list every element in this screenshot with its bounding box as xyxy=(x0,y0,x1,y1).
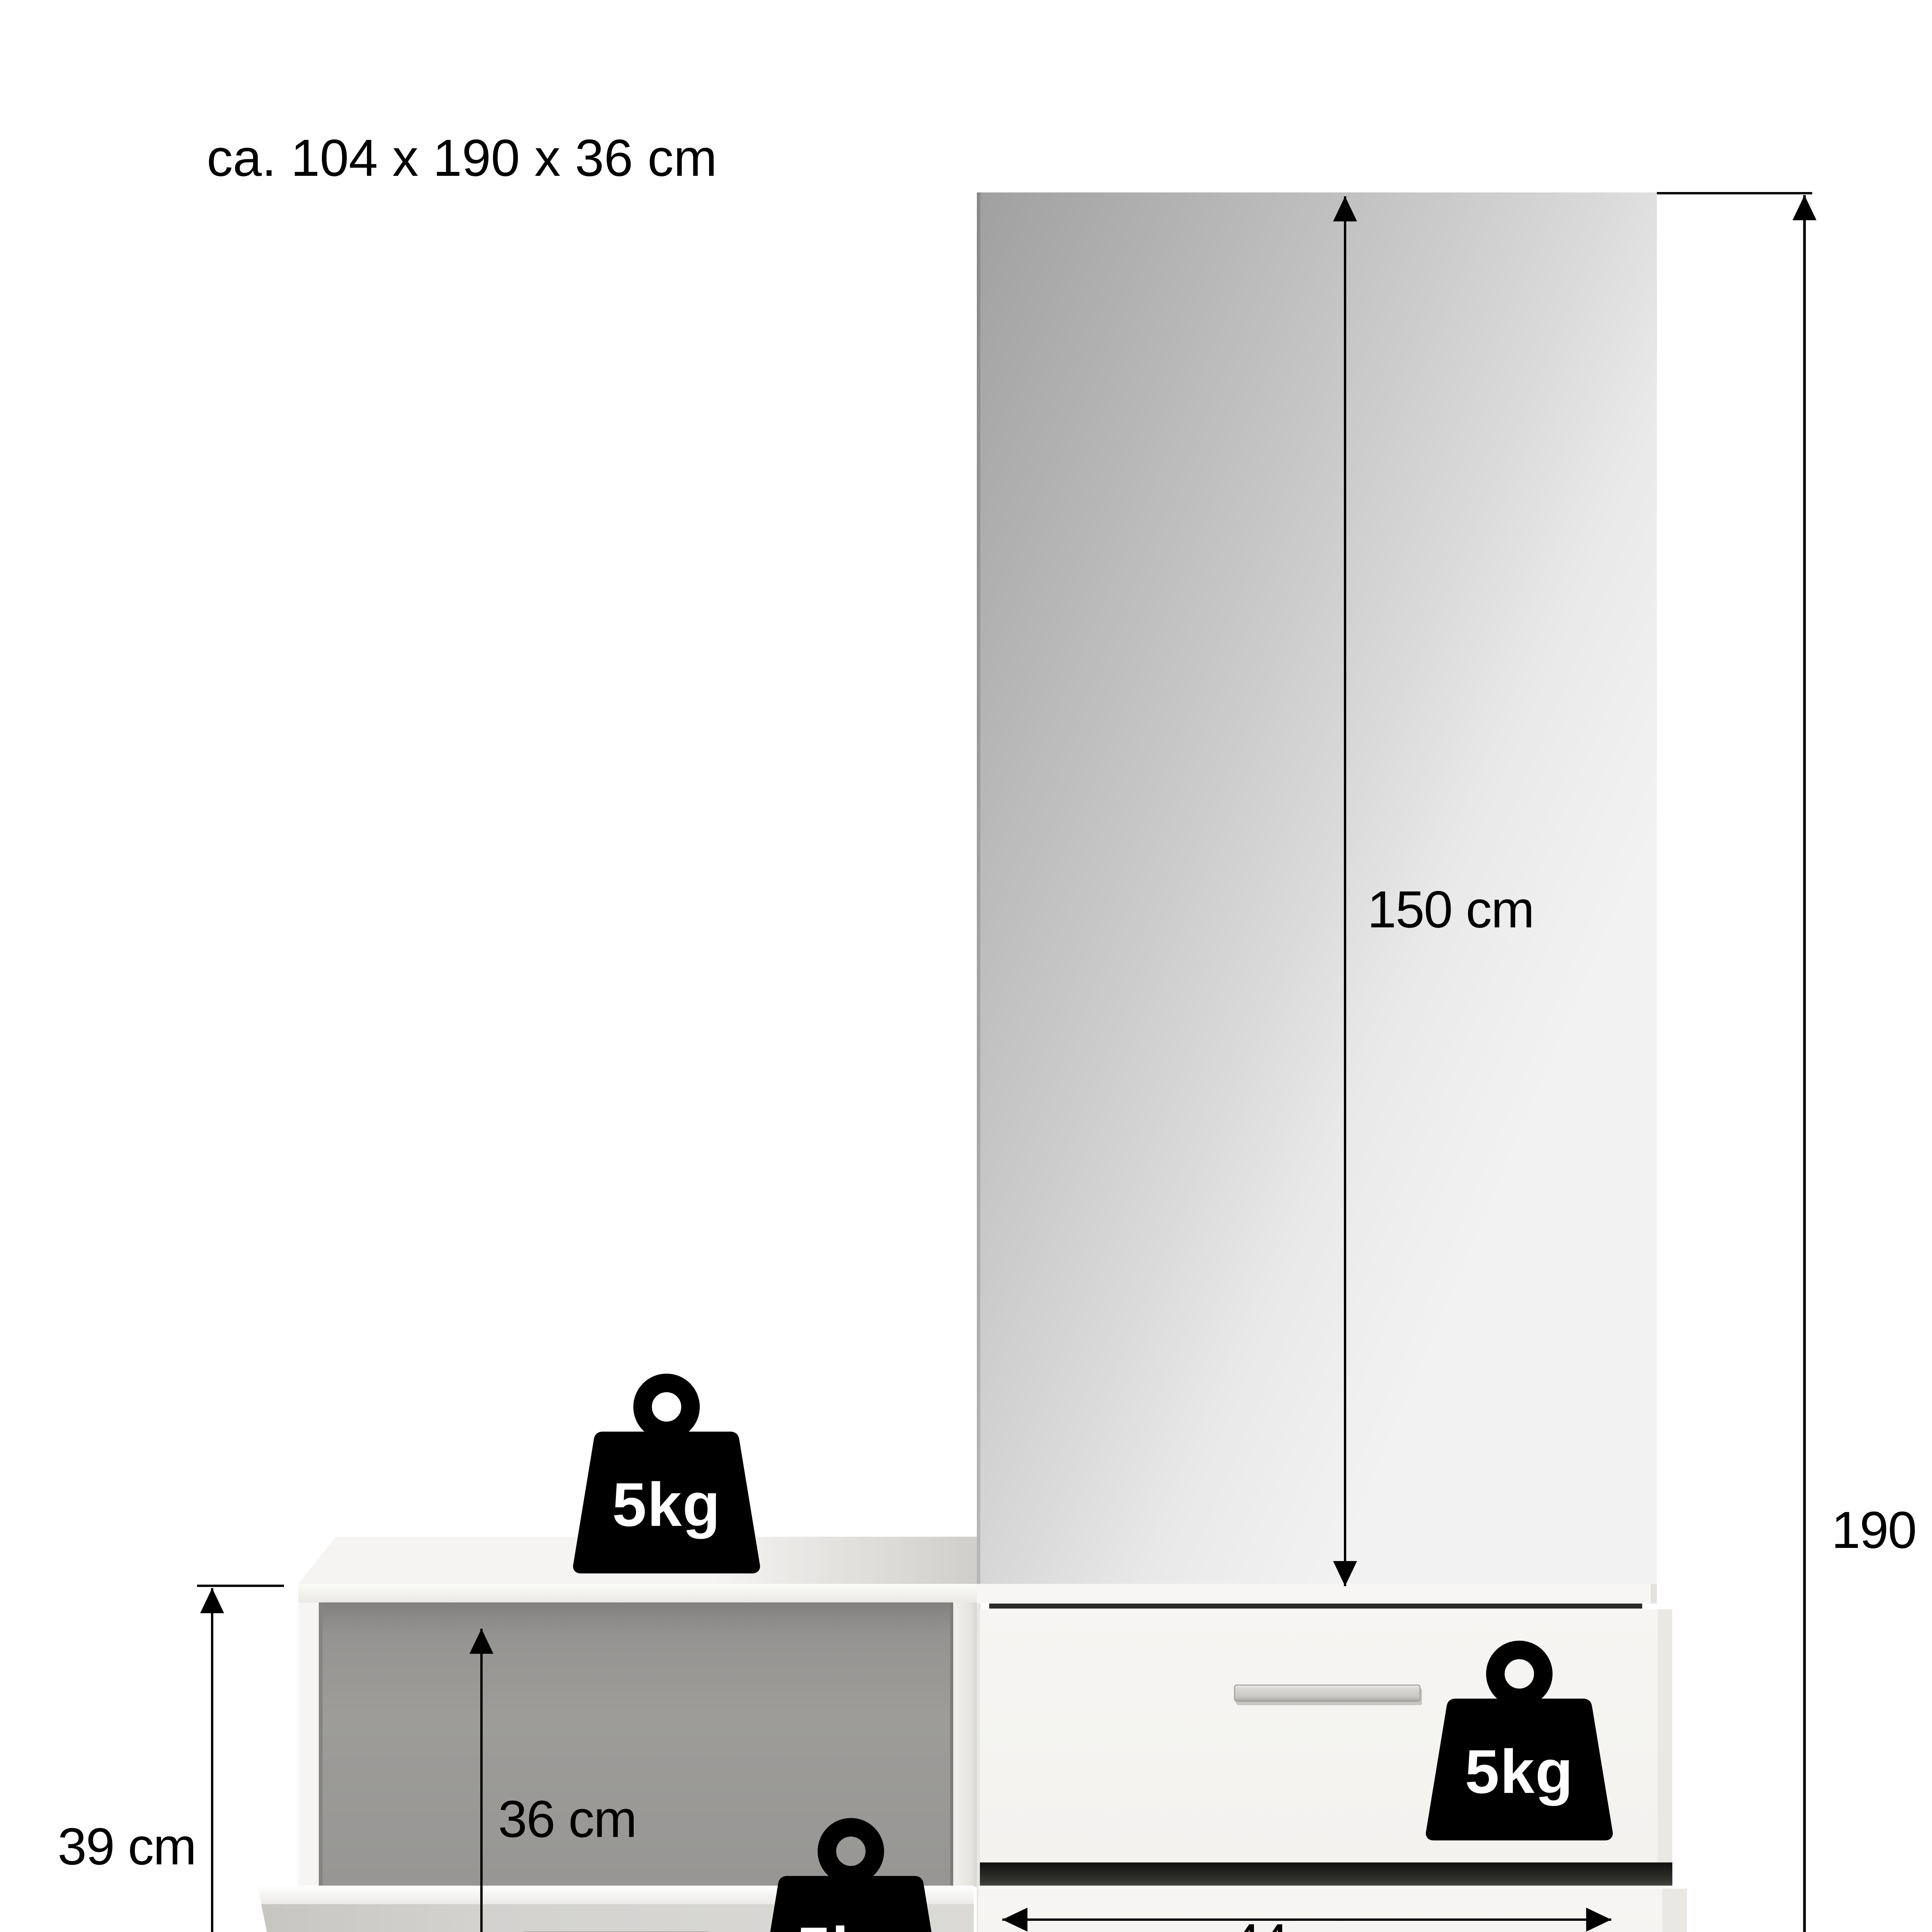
svg-text:36 cm: 36 cm xyxy=(498,1790,636,1848)
svg-text:44 cm: 44 cm xyxy=(1231,1913,1370,1932)
svg-text:190 cm: 190 cm xyxy=(1832,1501,1932,1559)
svg-text:150 cm: 150 cm xyxy=(1367,880,1534,939)
svg-text:39 cm: 39 cm xyxy=(58,1817,196,1876)
svg-text:ca. 104 x 190 x 36 cm: ca. 104 x 190 x 36 cm xyxy=(207,129,717,187)
